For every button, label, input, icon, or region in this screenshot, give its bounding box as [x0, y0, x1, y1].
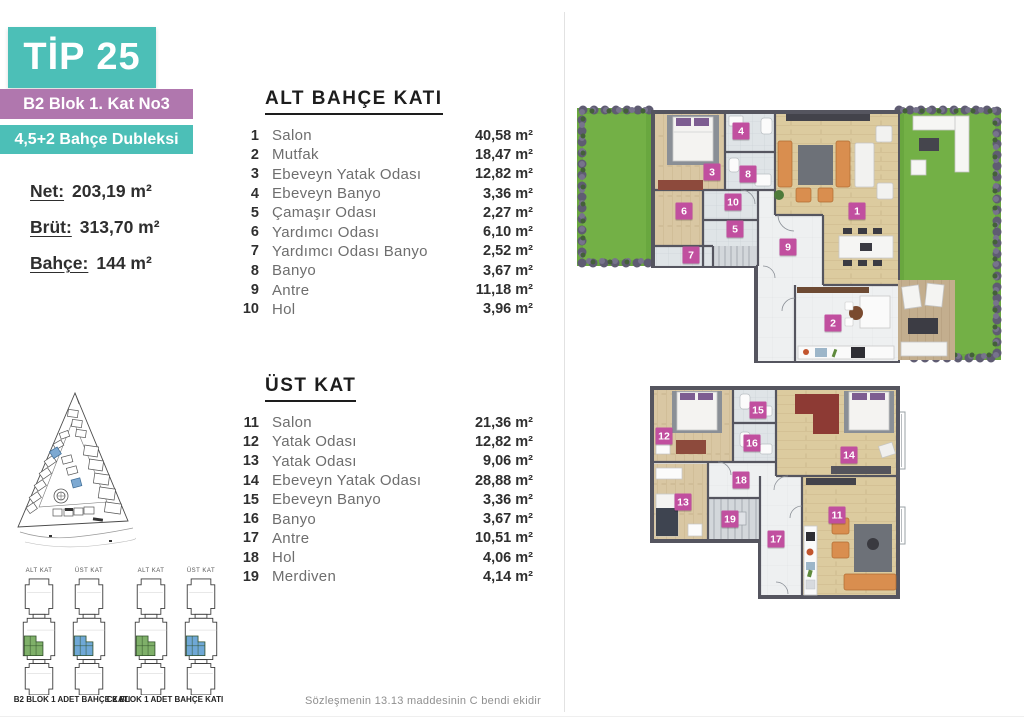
- floorplan-upper: 11 12 13 14 15 16 17 18 19: [648, 386, 910, 624]
- room-number: 13: [237, 453, 259, 469]
- room-area: 11,18 m²: [476, 282, 533, 298]
- room-number-badge: 4: [733, 123, 750, 140]
- room-number: 3: [237, 166, 259, 182]
- room-name: Hol: [272, 549, 483, 566]
- stat-value: 144 m²: [96, 253, 151, 274]
- stat-label: Brüt:: [30, 217, 72, 238]
- table-row: 7 Yardımcı Odası Banyo 2,52 m²: [237, 242, 533, 261]
- room-area: 10,51 m²: [475, 530, 533, 546]
- room-number-badge: 8: [740, 166, 757, 183]
- room-number: 19: [237, 569, 259, 585]
- room-area: 2,27 m²: [483, 205, 533, 221]
- floorplan-lower-drawing: [573, 98, 1015, 370]
- kitchen-island: [860, 296, 890, 328]
- stat-value: 313,70 m²: [80, 217, 160, 238]
- room-name: Banyo: [272, 262, 483, 279]
- room-name: Çamaşır Odası: [272, 204, 483, 221]
- table-row: 16 Banyo 3,67 m²: [237, 509, 533, 528]
- room-number-badge: 7: [683, 247, 700, 264]
- desk-14: [831, 466, 891, 474]
- room-number-badge: 6: [676, 203, 693, 220]
- bottom-hairline: [0, 716, 1024, 717]
- room-area: 3,96 m²: [483, 301, 533, 317]
- mini-block-diagram: ALT KAT: [129, 568, 173, 700]
- room-number-badge: 18: [733, 472, 750, 489]
- room-number: 1: [237, 128, 259, 144]
- table-row: 17 Antre 10,51 m²: [237, 529, 533, 548]
- room-area: 3,67 m²: [483, 263, 533, 279]
- mini-block-diagram: ALT KAT: [17, 568, 61, 700]
- upper-floor-table: ÜST KAT 11 Salon 21,36 m² 12 Yatak Odası…: [237, 375, 533, 587]
- contract-note: Sözleşmenin 13.13 maddesinin C bendi eki…: [305, 695, 541, 707]
- stat-label: Bahçe:: [30, 253, 88, 274]
- mini-block-diagram: ÜST KAT: [67, 568, 111, 700]
- room-area: 9,06 m²: [483, 453, 533, 469]
- room-number-badge: 2: [825, 315, 842, 332]
- room-name: Antre: [272, 282, 476, 299]
- table-row: 6 Yardımcı Odası 6,10 m²: [237, 222, 533, 241]
- room-number: 7: [237, 243, 259, 259]
- room-number-badge: 15: [750, 402, 767, 419]
- room-area: 28,88 m²: [475, 473, 533, 489]
- room-name: Salon: [272, 414, 475, 431]
- room-number-badge: 1: [849, 203, 866, 220]
- lower-floor-heading: ALT BAHÇE KATI: [265, 88, 443, 115]
- mini-block-diagram: ÜST KAT: [179, 568, 223, 700]
- room-area: 18,47 m²: [475, 147, 533, 163]
- room-number: 17: [237, 530, 259, 546]
- mini-caption-c2: C2 BLOK 1 ADET BAHÇE KATI: [107, 695, 223, 704]
- room-number: 14: [237, 473, 259, 489]
- highlighted-block-c2: [71, 478, 82, 488]
- table-row: 12 Yatak Odası 12,82 m²: [237, 432, 533, 451]
- room-name: Ebeveyn Yatak Odası: [272, 166, 475, 183]
- table-row: 19 Merdiven 4,14 m²: [237, 567, 533, 586]
- room-number-badge: 14: [841, 447, 858, 464]
- room-number: 9: [237, 282, 259, 298]
- room-area: 3,67 m²: [483, 511, 533, 527]
- mini-floor-label: ALT KAT: [129, 568, 173, 574]
- room-number: 6: [237, 224, 259, 240]
- table-row: 2 Mutfak 18,47 m²: [237, 145, 533, 164]
- room-number: 12: [237, 434, 259, 450]
- room-name: Yardımcı Odası: [272, 224, 483, 241]
- room-area: 2,52 m²: [483, 243, 533, 259]
- room-number-badge: 16: [744, 435, 761, 452]
- room-name: Ebeveyn Yatak Odası: [272, 472, 475, 489]
- table-row: 8 Banyo 3,67 m²: [237, 261, 533, 280]
- stat-row: Brüt: 313,70 m²: [30, 217, 160, 253]
- unit-subtitle: 4,5+2 Bahçe Dubleksi: [0, 125, 193, 154]
- room-name: Salon: [272, 127, 475, 144]
- room-number-badge: 19: [722, 511, 739, 528]
- table-row: 3 Ebeveyn Yatak Odası 12,82 m²: [237, 165, 533, 184]
- table-row: 11 Salon 21,36 m²: [237, 413, 533, 432]
- table-row: 9 Antre 11,18 m²: [237, 280, 533, 299]
- room-area: 6,10 m²: [483, 224, 533, 240]
- stat-value: 203,19 m²: [72, 181, 152, 202]
- brochure-page: TİP 25 B2 Blok 1. Kat No3 4,5+2 Bahçe Du…: [0, 0, 1024, 724]
- sofa-white: [855, 143, 874, 187]
- stat-row: Net: 203,19 m²: [30, 181, 160, 217]
- tv-console-11: [806, 478, 856, 485]
- sofa-11: [844, 574, 896, 590]
- upper-floor-heading: ÜST KAT: [265, 375, 356, 402]
- room-number-badge: 5: [727, 221, 744, 238]
- room-number-badge: 12: [656, 428, 673, 445]
- room-name: Ebeveyn Banyo: [272, 185, 483, 202]
- room-area: 12,82 m²: [475, 166, 533, 182]
- table-row: 13 Yatak Odası 9,06 m²: [237, 452, 533, 471]
- room-name: Ebeveyn Banyo: [272, 491, 483, 508]
- room-number: 10: [237, 301, 259, 317]
- room-number-badge: 11: [829, 507, 846, 524]
- kitchen-shelf: [797, 287, 869, 293]
- room-number-badge: 9: [780, 239, 797, 256]
- room-name: Hol: [272, 301, 483, 318]
- lower-floor-table: ALT BAHÇE KATI 1 Salon 40,58 m² 2 Mutfak…: [237, 88, 533, 319]
- room-area: 12,82 m²: [475, 434, 533, 450]
- room-number: 2: [237, 147, 259, 163]
- sofa-orange-right: [836, 141, 850, 187]
- room-name: Banyo: [272, 511, 483, 528]
- room-name: Mutfak: [272, 146, 475, 163]
- mini-outline-drawing: [67, 575, 111, 695]
- room-number: 15: [237, 492, 259, 508]
- floorplan-lower: 1 2 3 4 5 6 7 8 9 10: [573, 98, 1015, 370]
- room-tables: ALT BAHÇE KATI 1 Salon 40,58 m² 2 Mutfak…: [237, 88, 533, 587]
- kitchen-counter: [798, 346, 894, 359]
- room-number: 8: [237, 263, 259, 279]
- table-row: 14 Ebeveyn Yatak Odası 28,88 m²: [237, 471, 533, 490]
- area-stats: Net: 203,19 m² Brüt: 313,70 m² Bahçe: 14…: [30, 181, 160, 289]
- room-name: Antre: [272, 530, 475, 547]
- room-area: 4,14 m²: [483, 569, 533, 585]
- room-number: 5: [237, 205, 259, 221]
- room-number-badge: 13: [675, 494, 692, 511]
- deck-table: [908, 318, 938, 334]
- table-row: 5 Çamaşır Odası 2,27 m²: [237, 203, 533, 222]
- type-title: TİP 25: [8, 27, 156, 88]
- stairs-lower: [713, 246, 758, 266]
- room-area: 4,06 m²: [483, 550, 533, 566]
- site-plan-sketch: [5, 390, 150, 558]
- stat-label: Net:: [30, 181, 64, 202]
- mini-outline-drawing: [17, 575, 61, 695]
- room-number-badge: 3: [704, 164, 721, 181]
- sofa-orange-left: [778, 141, 792, 187]
- room-area: 21,36 m²: [475, 415, 533, 431]
- mini-outline-drawing: [129, 575, 173, 695]
- room-number-badge: 17: [768, 531, 785, 548]
- room-number: 16: [237, 511, 259, 527]
- room-name: Yardımcı Odası Banyo: [272, 243, 483, 260]
- living-rug: [798, 145, 833, 185]
- table-row: 18 Hol 4,06 m²: [237, 548, 533, 567]
- room-area: 3,36 m²: [483, 492, 533, 508]
- vertical-divider: [564, 12, 565, 712]
- mini-outline-drawing: [179, 575, 223, 695]
- block-subtitle: B2 Blok 1. Kat No3: [0, 89, 193, 119]
- mini-floor-label: ALT KAT: [17, 568, 61, 574]
- mini-floor-label: ÜST KAT: [179, 568, 223, 574]
- room-number: 18: [237, 550, 259, 566]
- table-row: 4 Ebeveyn Banyo 3,36 m²: [237, 184, 533, 203]
- tv-console: [786, 114, 870, 121]
- room-number: 11: [237, 415, 259, 431]
- room-name: Merdiven: [272, 568, 483, 585]
- wardrobe: [658, 180, 703, 190]
- room-name: Yatak Odası: [272, 453, 483, 470]
- room-number-badge: 10: [725, 194, 742, 211]
- table-row: 10 Hol 3,96 m²: [237, 300, 533, 319]
- room-area: 3,36 m²: [483, 186, 533, 202]
- table-row: 1 Salon 40,58 m²: [237, 126, 533, 145]
- mini-floor-label: ÜST KAT: [67, 568, 111, 574]
- table-row: 15 Ebeveyn Banyo 3,36 m²: [237, 490, 533, 509]
- room-area: 40,58 m²: [475, 128, 533, 144]
- stat-row: Bahçe: 144 m²: [30, 253, 160, 289]
- block-key-diagrams: ALT KAT ÜST KAT: [12, 568, 242, 718]
- room-name: Yatak Odası: [272, 433, 475, 450]
- room-number: 4: [237, 186, 259, 202]
- wardrobe-12: [676, 440, 706, 454]
